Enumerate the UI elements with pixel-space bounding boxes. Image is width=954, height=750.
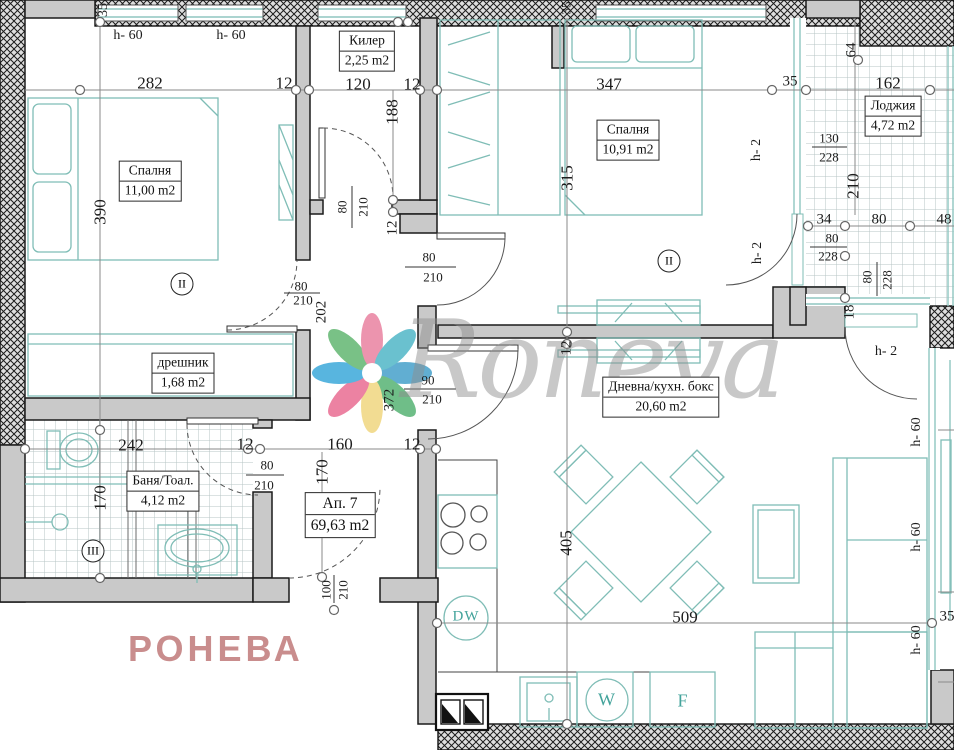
dim-35-right: 35 — [940, 610, 954, 625]
dining-table — [571, 462, 711, 602]
watermark-caps: РОНЕВА — [128, 628, 304, 670]
note-h2-3: h- 2 — [875, 345, 897, 359]
room-area: 20,60 m2 — [603, 398, 718, 417]
window-symbol-icon — [436, 694, 488, 730]
room-area: 69,63 m2 — [306, 516, 375, 537]
dim-228-2: 228 — [818, 250, 838, 263]
room-name: Лоджия — [866, 97, 921, 117]
dim-80-5: 80 — [423, 251, 436, 264]
note-h60-window-1: h- 60 — [113, 29, 142, 43]
room-name: Дневна/кухн. бокс — [603, 378, 718, 398]
coffee-table — [753, 505, 799, 583]
dim-315: 315 — [559, 165, 576, 191]
dim-100-entry: 100 — [320, 580, 333, 600]
floor-plan: Roneva РОНЕВА Спалня11,00 m2Килер2,25 m2… — [0, 0, 954, 750]
dim-64: 64 — [845, 43, 860, 58]
dim-210-bath: 210 — [254, 479, 274, 492]
axis-mark-III-bath: III — [82, 540, 105, 563]
dim-80-bath: 80 — [261, 459, 274, 472]
note-h60-r2: h- 60 — [910, 522, 924, 551]
dim-210-loggia: 210 — [845, 173, 862, 199]
kitchen — [438, 460, 715, 727]
dim-372: 372 — [383, 389, 398, 412]
coffee-table-inner — [758, 510, 794, 578]
room-area: 4,72 m2 — [866, 117, 921, 136]
dim-390: 390 — [92, 199, 109, 225]
room-area: 4,12 m2 — [127, 492, 198, 511]
room-area: 11,00 m2 — [120, 182, 181, 201]
dim-12-3: 12 — [386, 221, 401, 236]
dim-80-1: 80 — [872, 213, 887, 228]
room-label-kiler: Килер2,25 m2 — [339, 31, 395, 72]
wardrobe — [440, 20, 560, 215]
dim-509: 509 — [672, 609, 698, 626]
dim-120: 120 — [345, 76, 371, 93]
note-h2-2: h- 2 — [751, 242, 765, 264]
dim-80-3: 80 — [861, 271, 874, 284]
dim-80-kiler: 80 — [336, 201, 349, 214]
room-name: Спалня — [120, 162, 181, 182]
room-label-living-kitchen: Дневна/кухн. бокс20,60 m2 — [602, 377, 719, 418]
room-name: Спалня — [597, 121, 658, 141]
room-label-bedroom-2: Спалня10,91 m2 — [596, 120, 659, 161]
room-area: 2,25 m2 — [340, 52, 394, 71]
dim-210-entry: 210 — [337, 580, 350, 600]
dim-35-top-left: 35 — [97, 3, 111, 17]
dim-160: 160 — [327, 436, 353, 453]
note-h60-r3: h- 60 — [910, 625, 924, 654]
dim-34: 34 — [817, 213, 832, 228]
sofa — [755, 458, 927, 728]
dining-chairs — [554, 445, 724, 620]
dishwasher-label: DW — [453, 609, 480, 626]
dim-228-3: 228 — [881, 270, 894, 290]
room-label-loggia: Лоджия4,72 m2 — [865, 96, 922, 137]
room-label-dreshnik: дрешник1,68 m2 — [151, 353, 214, 394]
dim-282: 282 — [137, 75, 163, 92]
dim-210-6: 210 — [422, 393, 442, 406]
dim-228-1: 228 — [819, 151, 839, 164]
dim-12-5: 12 — [237, 436, 254, 453]
dim-35-2: 35 — [783, 75, 798, 90]
dim-170-bath: 170 — [92, 485, 109, 511]
bed-2 — [565, 20, 702, 215]
stove-icon — [438, 495, 497, 568]
dim-35-top-mid: 35 — [560, 2, 573, 15]
dim-242: 242 — [118, 437, 144, 454]
axis-mark-II-bedroom1: II — [171, 273, 194, 296]
dim-202: 202 — [315, 301, 330, 324]
dim-210-4: 210 — [293, 294, 313, 307]
room-label-apartment-number: Ап. 769,63 m2 — [305, 492, 376, 538]
room-area: 10,91 m2 — [597, 141, 658, 160]
note-h60-window-2: h- 60 — [216, 29, 245, 43]
room-name: Баня/Тоал. — [127, 472, 198, 492]
dim-90: 90 — [422, 374, 435, 387]
radiator-icon — [279, 125, 293, 220]
dim-18: 18 — [843, 305, 858, 320]
dim-170-hall: 170 — [314, 459, 331, 485]
room-name: Ап. 7 — [306, 493, 375, 515]
note-h60-r1: h- 60 — [910, 417, 924, 446]
dim-12-4: 12 — [560, 341, 575, 356]
room-name: дрешник — [152, 354, 213, 374]
room-label-bedroom-1: Спалня11,00 m2 — [119, 161, 182, 202]
dim-12-2: 12 — [404, 76, 421, 93]
dim-80-4: 80 — [295, 280, 308, 293]
washer-label: W — [598, 690, 616, 711]
fridge-label: F — [677, 691, 688, 712]
dim-130: 130 — [819, 132, 839, 145]
watermark-script: Roneva — [400, 298, 781, 423]
room-label-bathroom: Баня/Тоал.4,12 m2 — [126, 471, 199, 512]
dim-405: 405 — [558, 530, 575, 556]
room-area: 1,68 m2 — [152, 374, 213, 393]
dim-12-1: 12 — [276, 75, 293, 92]
dim-48: 48 — [937, 213, 952, 228]
room-name: Килер — [340, 32, 394, 52]
dim-210-kiler: 210 — [357, 197, 370, 217]
dim-210-5: 210 — [423, 271, 443, 284]
dim-188: 188 — [384, 99, 401, 125]
axis-mark-II-bedroom2: II — [658, 250, 681, 273]
dim-12-6: 12 — [404, 436, 421, 453]
dim-162: 162 — [875, 75, 901, 92]
dim-347: 347 — [596, 76, 622, 93]
dim-80-2: 80 — [826, 232, 839, 245]
note-h2-1: h- 2 — [750, 139, 764, 161]
